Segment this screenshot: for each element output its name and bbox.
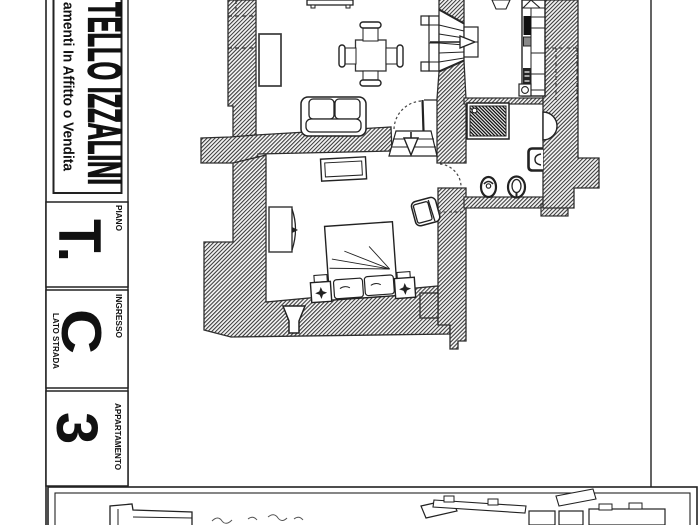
svg-text:TELLO IZZALINI: TELLO IZZALINI [79, 2, 132, 185]
svg-text:3: 3 [44, 412, 109, 444]
svg-text:LATO STRADA: LATO STRADA [51, 313, 60, 369]
svg-text:T.: T. [46, 219, 113, 262]
svg-text:APPARTAMENTO: APPARTAMENTO [113, 403, 122, 470]
svg-text:INGRESSO: INGRESSO [114, 294, 123, 338]
svg-text:amenti In Affitto o Vendita: amenti In Affitto o Vendita [60, 2, 77, 172]
svg-text:PIANO: PIANO [114, 205, 123, 231]
